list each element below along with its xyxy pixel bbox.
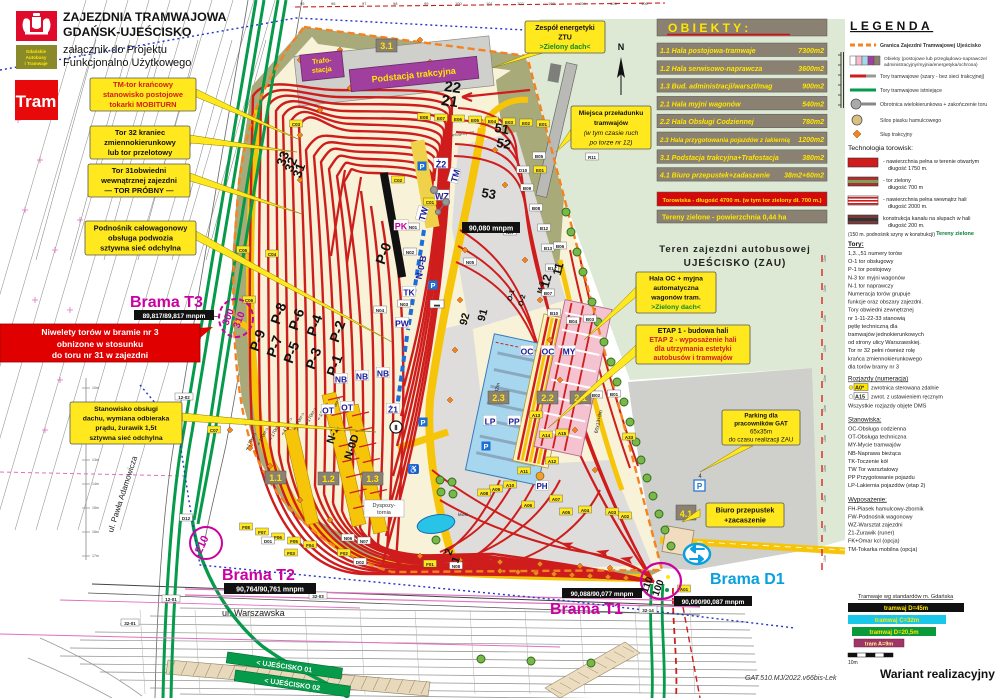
svg-text:Zespół energetyki: Zespół energetyki <box>535 25 595 32</box>
svg-text:Parking dla: Parking dla <box>744 412 778 419</box>
svg-text:Wyposażenie:: Wyposażenie: <box>848 496 887 503</box>
svg-text:3.1 Podstacja trakcyjna+Trafos: 3.1 Podstacja trakcyjna+Trafostacja <box>660 155 779 162</box>
svg-text:Numeracja torów grupuje: Numeracja torów grupuje <box>848 292 911 298</box>
svg-text:FW-Podnośnik wagonowy: FW-Podnośnik wagonowy <box>848 514 913 520</box>
svg-text:10m: 10m <box>823 345 827 352</box>
svg-text:10m: 10m <box>823 315 827 322</box>
svg-text:Brama T3: Brama T3 <box>130 294 203 311</box>
svg-text:N03: N03 <box>400 302 409 307</box>
svg-text:Brama T2: Brama T2 <box>222 567 295 584</box>
svg-text:>Zielony dach<: >Zielony dach< <box>651 304 701 311</box>
svg-text:Tereny zielone: Tereny zielone <box>936 231 974 237</box>
svg-text:B05: B05 <box>535 154 544 159</box>
svg-text:2.2: 2.2 <box>541 393 554 403</box>
svg-text:B10: B10 <box>550 311 559 316</box>
svg-text:B03: B03 <box>586 317 595 322</box>
svg-text:i Tramwaje: i Tramwaje <box>24 61 48 66</box>
svg-text:— TOR PRÓBNY —: — TOR PRÓBNY — <box>105 186 174 195</box>
svg-text:NB: NB <box>356 371 368 381</box>
svg-text:B13: B13 <box>544 246 553 251</box>
svg-text:ZTU: ZTU <box>558 34 572 41</box>
svg-text:▬: ▬ <box>434 303 440 309</box>
svg-text:E02: E02 <box>522 121 531 126</box>
svg-text:D01: D01 <box>264 539 273 544</box>
svg-text:Stanowisko obsługi: Stanowisko obsługi <box>94 406 158 413</box>
svg-text:E05: E05 <box>471 118 480 123</box>
svg-text:32-01: 32-01 <box>124 621 136 626</box>
svg-text:B07: B07 <box>544 291 553 296</box>
svg-text:TK-Toczenie kół: TK-Toczenie kół <box>848 459 889 465</box>
svg-text:C01: C01 <box>426 200 435 205</box>
svg-text:dachu, wymiana odbieraka: dachu, wymiana odbieraka <box>83 416 170 423</box>
svg-text:Dyspozy-: Dyspozy- <box>373 503 396 509</box>
svg-text:90,090/90,087 mnpm: 90,090/90,087 mnpm <box>682 599 745 606</box>
svg-text:funkcje oraz obszary zajezdni.: funkcje oraz obszary zajezdni. <box>848 300 923 306</box>
svg-text:A0*: A0* <box>855 386 865 392</box>
svg-text:tokarki MOBITURN: tokarki MOBITURN <box>109 100 176 109</box>
svg-text:1200m2: 1200m2 <box>798 137 824 144</box>
svg-text:Rozjazdy (numeracja): Rozjazdy (numeracja) <box>848 376 908 383</box>
svg-text:A12: A12 <box>548 459 557 464</box>
svg-text:Tory tramwajowe (szary - bez s: Tory tramwajowe (szary - bez sieci trakc… <box>880 74 985 80</box>
svg-text:7300m2: 7300m2 <box>798 48 824 55</box>
svg-text:N05: N05 <box>466 260 475 265</box>
svg-text:ławki: ławki <box>458 512 468 517</box>
svg-text:B02: B02 <box>592 393 601 398</box>
svg-text:D12: D12 <box>182 516 191 521</box>
svg-text:(w tym czasie ruch: (w tym czasie ruch <box>584 130 639 137</box>
svg-text:F01: F01 <box>426 562 434 567</box>
svg-text:sztywna sieć odchylna: sztywna sieć odchylna <box>89 435 163 442</box>
svg-text:10m: 10m <box>823 435 827 442</box>
svg-text:LP-Lakiernia pojazdów (etap 2): LP-Lakiernia pojazdów (etap 2) <box>848 483 926 489</box>
svg-text:65x35m: 65x35m <box>750 428 772 435</box>
svg-text:105: 105 <box>610 1 617 6</box>
svg-text:10m: 10m <box>823 555 827 562</box>
svg-text:- nawierzchnia pełna wewnątrz: - nawierzchnia pełna wewnątrz hali <box>883 197 967 203</box>
svg-text:100: 100 <box>455 1 462 6</box>
svg-text:Tramwaje wg standardów m. Gdań: Tramwaje wg standardów m. Gdańska <box>858 594 954 600</box>
svg-text:FK+Omar kcl (opcja): FK+Omar kcl (opcja) <box>848 539 900 545</box>
svg-text:TM-Tokarka mobilna (opcja): TM-Tokarka mobilna (opcja) <box>848 547 917 553</box>
svg-text:tram A=9m: tram A=9m <box>865 642 893 648</box>
svg-text:B04: B04 <box>569 319 578 324</box>
svg-text:Niwelety torów w bramie nr 3: Niwelety torów w bramie nr 3 <box>41 327 158 337</box>
svg-text:OC: OC <box>521 346 534 356</box>
svg-text:D10: D10 <box>519 168 528 173</box>
svg-text:A15: A15 <box>558 431 567 436</box>
svg-text:ul. Warszawska: ul. Warszawska <box>222 608 285 618</box>
svg-text:98: 98 <box>393 1 398 6</box>
svg-text:ETAP 1 - budowa hali: ETAP 1 - budowa hali <box>658 328 729 335</box>
svg-text:Tor nr 32 pełni również rolę: Tor nr 32 pełni również rolę <box>848 348 915 354</box>
svg-text:Tory obwiedni zewnętrznej: Tory obwiedni zewnętrznej <box>848 308 914 314</box>
svg-text:P: P <box>697 482 703 491</box>
svg-text:F05: F05 <box>290 539 298 544</box>
svg-text:PH: PH <box>536 482 547 491</box>
svg-text:NB: NB <box>377 368 389 378</box>
svg-text:2.3 Hala przygotowania pojazdó: 2.3 Hala przygotowania pojazdów z lakier… <box>659 137 791 144</box>
svg-text:po torze nr 12): po torze nr 12) <box>589 140 633 147</box>
svg-text:A33: A33 <box>625 435 634 440</box>
svg-text:NB-Naprawa bieżąca: NB-Naprawa bieżąca <box>848 451 902 457</box>
svg-text:F04: F04 <box>306 543 314 548</box>
svg-text:14m: 14m <box>92 482 99 486</box>
svg-text:10m: 10m <box>823 525 827 532</box>
svg-text:- nawierzchnia pełna w terenie: - nawierzchnia pełna w terenie otwartym <box>883 159 980 165</box>
svg-text:PW: PW <box>395 318 410 328</box>
svg-text:stanowisko postojowe: stanowisko postojowe <box>103 90 183 99</box>
svg-text:Obiekty (postojowe lub przeglą: Obiekty (postojowe lub przeglądowo-napra… <box>884 56 988 62</box>
svg-text:F06: F06 <box>274 535 282 540</box>
svg-text:PK: PK <box>395 222 408 232</box>
svg-text:zmiennokierunkowy: zmiennokierunkowy <box>104 138 177 147</box>
svg-text:P: P <box>420 418 425 427</box>
svg-text:N01: N01 <box>409 225 418 230</box>
svg-text:tramwaj D=45m: tramwaj D=45m <box>884 606 928 612</box>
svg-text:OC-Obsługa codzienna: OC-Obsługa codzienna <box>848 427 907 433</box>
svg-text:2.2 Hala Obsługi Codziennej: 2.2 Hala Obsługi Codziennej <box>659 119 755 126</box>
svg-text:OT: OT <box>341 402 354 412</box>
svg-text:E08: E08 <box>420 115 429 120</box>
svg-text:Tory tramwajowe istniejące: Tory tramwajowe istniejące <box>880 88 942 94</box>
svg-text:dla utrzymania estetyki: dla utrzymania estetyki <box>654 346 731 353</box>
svg-text:Autobusy: Autobusy <box>26 55 47 60</box>
svg-text:N06: N06 <box>344 536 353 541</box>
svg-text:A06: A06 <box>524 503 533 508</box>
svg-text:TK: TK <box>403 287 415 297</box>
svg-text:nr 1-11-22-33 stanowią: nr 1-11-22-33 stanowią <box>848 316 906 322</box>
svg-text:95: 95 <box>300 1 305 6</box>
svg-text:tramwaj C=32m: tramwaj C=32m <box>875 618 919 624</box>
svg-text:101: 101 <box>486 1 493 6</box>
svg-text:B08: B08 <box>532 206 541 211</box>
svg-text:E06: E06 <box>454 117 463 122</box>
svg-text:FH-Piasek hamulcowy-zbornik: FH-Piasek hamulcowy-zbornik <box>848 506 924 512</box>
svg-text:E01: E01 <box>539 122 548 127</box>
svg-text:zwrotnica sterowana zdalnie: zwrotnica sterowana zdalnie <box>871 386 939 392</box>
svg-text:A04: A04 <box>581 508 590 513</box>
svg-text:10m: 10m <box>823 405 827 412</box>
svg-text:P-1 tor postojowy: P-1 tor postojowy <box>848 267 891 273</box>
svg-text:R11: R11 <box>588 155 597 160</box>
svg-text:32-14: 32-14 <box>642 608 654 613</box>
svg-text:A13: A13 <box>532 413 541 418</box>
svg-text:Słup trakcyjny: Słup trakcyjny <box>880 132 913 138</box>
svg-text:A03: A03 <box>608 510 617 515</box>
svg-text:NB: NB <box>335 374 347 384</box>
svg-text:pętlę techniczną dla: pętlę techniczną dla <box>848 324 898 330</box>
svg-text:A07: A07 <box>552 497 561 502</box>
svg-text:Ż2: Ż2 <box>436 160 447 170</box>
svg-text:♿: ♿ <box>409 464 419 474</box>
svg-text:WZ-Warsztat zajezdni: WZ-Warsztat zajezdni <box>848 523 903 529</box>
svg-text:wagonów tram.: wagonów tram. <box>650 295 701 302</box>
svg-text:106: 106 <box>641 1 648 6</box>
svg-text:C07: C07 <box>210 428 219 433</box>
svg-text:90,088/90,077 mnpm: 90,088/90,077 mnpm <box>571 591 634 598</box>
svg-text:A10: A10 <box>506 483 515 488</box>
svg-text:780m2: 780m2 <box>802 119 824 126</box>
svg-text:380m2: 380m2 <box>802 155 824 162</box>
svg-text:103: 103 <box>548 1 555 6</box>
svg-text:(150 m. podnośnik szyny w ko: (150 m. podnośnik szyny w konstrukcji) <box>848 232 935 238</box>
svg-text:540m2: 540m2 <box>802 101 824 108</box>
svg-text:1.1: 1.1 <box>269 473 282 483</box>
svg-text:16m: 16m <box>92 530 99 534</box>
svg-text:Funkcjonalno Użytkowego: Funkcjonalno Użytkowego <box>63 57 191 69</box>
svg-text:17m: 17m <box>92 554 99 558</box>
svg-text:32-03: 32-03 <box>312 594 324 599</box>
svg-text:N-3 tor myjni wagonów: N-3 tor myjni wagonów <box>848 275 906 281</box>
svg-text:Ⅱ: Ⅱ <box>394 424 397 432</box>
svg-text:10m: 10m <box>848 660 858 666</box>
svg-text:2.3: 2.3 <box>492 393 505 403</box>
svg-text:C04: C04 <box>268 252 277 257</box>
svg-text:96: 96 <box>331 1 336 6</box>
svg-text:D02: D02 <box>356 560 365 565</box>
svg-text:GAT.510.MJ/2022.v66bis-Lek: GAT.510.MJ/2022.v66bis-Lek <box>745 675 837 682</box>
svg-text:Hala OC + myjna: Hala OC + myjna <box>649 276 703 283</box>
svg-text:Technologia torowisk:: Technologia torowisk: <box>848 145 913 152</box>
svg-text:F07: F07 <box>258 530 266 535</box>
svg-text:Podnośnik całowagonowy: Podnośnik całowagonowy <box>94 223 189 232</box>
svg-text:TM-tor krańcowy: TM-tor krańcowy <box>113 80 174 89</box>
svg-text:Miejsca przeładunku: Miejsca przeładunku <box>579 110 644 117</box>
svg-text:do czasu realizacji ZAU: do czasu realizacji ZAU <box>729 437 794 444</box>
svg-text:wewnątrznej zajezdni: wewnątrznej zajezdni <box>100 176 177 185</box>
svg-text:F08: F08 <box>242 525 250 530</box>
svg-text:15m: 15m <box>92 506 99 510</box>
svg-text:długość 200 m.: długość 200 m. <box>888 223 925 229</box>
svg-text:pracowników GAT: pracowników GAT <box>734 420 788 427</box>
svg-text:N02: N02 <box>406 250 415 255</box>
svg-text:tramwaj D=20,5m: tramwaj D=20,5m <box>869 630 918 636</box>
svg-text:LP: LP <box>485 416 496 426</box>
svg-text:>Zielony dach<: >Zielony dach< <box>540 44 591 51</box>
svg-text:90,764/90,761 mnpm: 90,764/90,761 mnpm <box>236 587 304 594</box>
svg-text:tornia: tornia <box>377 510 392 516</box>
svg-text:ZAJEZDNIA TRAMWAJOWA: ZAJEZDNIA TRAMWAJOWA <box>63 10 227 24</box>
svg-text:+zacaszenie: +zacaszenie <box>724 516 766 525</box>
svg-text:2.1 Hala myjni wagonów: 2.1 Hala myjni wagonów <box>659 101 741 108</box>
svg-text:konstrukcja kanału na słupach: konstrukcja kanału na słupach w hali <box>883 216 971 222</box>
svg-text:automatyczna: automatyczna <box>653 285 699 292</box>
svg-text:1.1 Hala postojowa-tramwaje: 1.1 Hala postojowa-tramwaje <box>660 48 756 55</box>
svg-text:PP Przygotowanie pojazdu: PP Przygotowanie pojazdu <box>848 475 915 481</box>
svg-text:F02: F02 <box>340 551 348 556</box>
svg-text:Brama T1: Brama T1 <box>550 601 623 618</box>
svg-text:obsługa podwozia: obsługa podwozia <box>108 233 174 242</box>
svg-text:10m: 10m <box>823 495 827 502</box>
svg-text:A05: A05 <box>562 510 571 515</box>
svg-text:89,817/89,817 mnpm: 89,817/89,817 mnpm <box>143 313 206 320</box>
svg-text:Wariant realizacyjny: Wariant realizacyjny <box>880 667 995 681</box>
svg-text:B06: B06 <box>556 244 565 249</box>
svg-text:99: 99 <box>424 1 429 6</box>
svg-text:P: P <box>430 281 435 290</box>
svg-text:102: 102 <box>517 1 524 6</box>
svg-text:1,3..,51 numery torów: 1,3..,51 numery torów <box>848 251 903 257</box>
svg-text:- tor zielony: - tor zielony <box>883 178 911 184</box>
svg-text:ETAP 2 - wyposażenie hali: ETAP 2 - wyposażenie hali <box>649 337 736 344</box>
svg-text:Teren zajezdni autobusowej: Teren zajezdni autobusowej <box>659 244 810 255</box>
svg-text:13m: 13m <box>92 458 99 462</box>
svg-text:N-1 tor naprawczy: N-1 tor naprawczy <box>848 283 894 289</box>
svg-text:10m: 10m <box>823 375 827 382</box>
svg-text:A11: A11 <box>520 469 529 474</box>
svg-text:długość 2000 m.: długość 2000 m. <box>888 204 928 210</box>
svg-text:UJEŚCISKO (ZAU): UJEŚCISKO (ZAU) <box>684 256 787 269</box>
svg-text:administracyjny/myjnia/energet: administracyjny/myjnia/energetyka/ochron… <box>884 62 978 68</box>
svg-text:zwrot. z ustawieniem ręcznym: zwrot. z ustawieniem ręcznym <box>871 395 943 401</box>
svg-text:LEGENDA: LEGENDA <box>850 19 933 33</box>
svg-text:F03: F03 <box>287 551 295 556</box>
svg-text:A14: A14 <box>542 433 551 438</box>
svg-text:104: 104 <box>579 1 586 6</box>
svg-text:97: 97 <box>362 1 367 6</box>
svg-text:A01: A01 <box>680 587 689 592</box>
svg-text:PP: PP <box>508 416 520 426</box>
svg-text:GDAŃSK-UJEŚCISKO: GDAŃSK-UJEŚCISKO <box>63 24 192 39</box>
svg-text:C02: C02 <box>394 178 403 183</box>
svg-text:lub tor przelotowy: lub tor przelotowy <box>108 148 173 157</box>
svg-text:dla torów bramy nr 3: dla torów bramy nr 3 <box>848 364 899 370</box>
svg-text:1.2 Hala serwisowo-naprawcza: 1.2 Hala serwisowo-naprawcza <box>660 66 762 73</box>
svg-text:90,080 mnpm: 90,080 mnpm <box>469 226 513 233</box>
svg-text:E01: E01 <box>536 168 545 173</box>
svg-text:900m2: 900m2 <box>802 84 824 91</box>
svg-text:B09: B09 <box>523 186 532 191</box>
svg-text:Tor 32 kraniec: Tor 32 kraniec <box>115 128 165 137</box>
svg-text:N: N <box>618 42 625 52</box>
svg-text:Tram: Tram <box>16 92 57 111</box>
svg-text:długość 700 m: długość 700 m <box>888 185 924 191</box>
svg-text:12-01: 12-01 <box>165 597 177 602</box>
svg-text:Stanowiska:: Stanowiska: <box>848 417 882 424</box>
svg-text:do toru nr 31 w zajezdni: do toru nr 31 w zajezdni <box>52 350 148 360</box>
svg-text:tramwajów jednokierunkowych: tramwajów jednokierunkowych <box>848 332 924 338</box>
svg-text:P: P <box>419 162 424 171</box>
svg-text:od strony ulicy Warszawskiej.: od strony ulicy Warszawskiej. <box>848 340 921 346</box>
svg-text:O-1 tor obsługowy: O-1 tor obsługowy <box>848 259 894 265</box>
svg-text:B01: B01 <box>610 392 619 397</box>
svg-text:10m: 10m <box>92 386 99 390</box>
svg-text:1.3: 1.3 <box>366 474 379 484</box>
svg-text:MY: MY <box>563 346 576 356</box>
svg-text:O B I E K T Y :: O B I E K T Y : <box>668 21 748 35</box>
svg-text:sztywna sieć odchylna: sztywna sieć odchylna <box>100 244 182 253</box>
svg-text:Tereny zielone - powierzchnia: Tereny zielone - powierzchnia 0,44 ha <box>662 215 786 222</box>
svg-text:Biuro przepustek: Biuro przepustek <box>716 505 775 514</box>
svg-text:tramwajów: tramwajów <box>594 120 629 127</box>
svg-text:Silos piasku hamulcowego: Silos piasku hamulcowego <box>880 118 941 124</box>
svg-text:Wszystkie rozjazdy objęte DMS: Wszystkie rozjazdy objęte DMS <box>848 404 927 410</box>
svg-text:A15: A15 <box>855 395 865 401</box>
svg-text:12-02: 12-02 <box>178 395 190 400</box>
svg-text:A09: A09 <box>492 487 501 492</box>
svg-text:4.1 Biuro przepustek+zadaszeni: 4.1 Biuro przepustek+zadaszenie <box>659 173 770 180</box>
svg-text:Ż1-Żurawik (runer): Ż1-Żurawik (runer) <box>848 530 894 537</box>
svg-text:3600m2: 3600m2 <box>798 66 824 73</box>
svg-text:załącznik do Projektu: załącznik do Projektu <box>63 44 167 56</box>
svg-text:OT: OT <box>322 405 335 415</box>
svg-text:Tory:: Tory: <box>848 241 864 248</box>
svg-text:10m: 10m <box>823 465 827 472</box>
svg-text:53: 53 <box>480 185 497 202</box>
svg-text:1.2: 1.2 <box>322 474 335 484</box>
svg-text:MY-Mycie tramwajów: MY-Mycie tramwajów <box>848 443 902 449</box>
svg-text:N07: N07 <box>360 539 369 544</box>
svg-text:52: 52 <box>495 135 512 152</box>
svg-text:Obrotnica wielokierunkowa + za: Obrotnica wielokierunkowa + zakończenie … <box>880 102 987 108</box>
svg-text:prądu, żurawik 1,5t: prądu, żurawik 1,5t <box>95 425 157 432</box>
svg-text:Gdańskie: Gdańskie <box>26 49 47 54</box>
svg-text:3.1: 3.1 <box>380 41 393 51</box>
svg-text:Tor 31obwiedni: Tor 31obwiedni <box>112 166 166 175</box>
svg-text:Brama D1: Brama D1 <box>710 571 785 588</box>
svg-text:P: P <box>483 442 488 451</box>
svg-text:A08: A08 <box>480 491 489 496</box>
svg-text:OC: OC <box>542 346 555 356</box>
svg-text:21: 21 <box>440 92 459 111</box>
svg-text:C05: C05 <box>239 248 248 253</box>
svg-text:Torowiska - długość 4700 m. (w: Torowiska - długość 4700 m. (w tym tor z… <box>662 198 821 204</box>
svg-text:B12: B12 <box>540 226 549 231</box>
svg-text:TW Tor warsztatowy: TW Tor warsztatowy <box>848 467 898 473</box>
svg-text:OT-Obsługa techniczna: OT-Obsługa techniczna <box>848 435 907 441</box>
svg-text:C03: C03 <box>292 122 301 127</box>
svg-text:10m: 10m <box>823 285 827 292</box>
svg-text:E07: E07 <box>437 116 446 121</box>
svg-text:obnizone w stosunku: obnizone w stosunku <box>57 339 143 349</box>
svg-text:1.3 Bud. administracji/warszt/: 1.3 Bud. administracji/warszt/mag <box>660 84 773 91</box>
svg-text:autobusów i tramwajów: autobusów i tramwajów <box>654 355 734 362</box>
svg-text:Granica Zajezdni Tramwajowej U: Granica Zajezdni Tramwajowej Ujeścisko <box>880 43 981 49</box>
svg-text:krańca zmiennokierunkowego: krańca zmiennokierunkowego <box>848 356 922 362</box>
svg-text:38m2+60m2: 38m2+60m2 <box>784 173 824 180</box>
svg-text:A02: A02 <box>621 514 630 519</box>
svg-text:N04: N04 <box>376 308 385 313</box>
svg-text:10m: 10m <box>823 255 827 262</box>
svg-text:długość 1750 m.: długość 1750 m. <box>888 166 928 172</box>
svg-text:C06: C06 <box>245 298 254 303</box>
svg-text:Ż1: Ż1 <box>388 404 398 414</box>
